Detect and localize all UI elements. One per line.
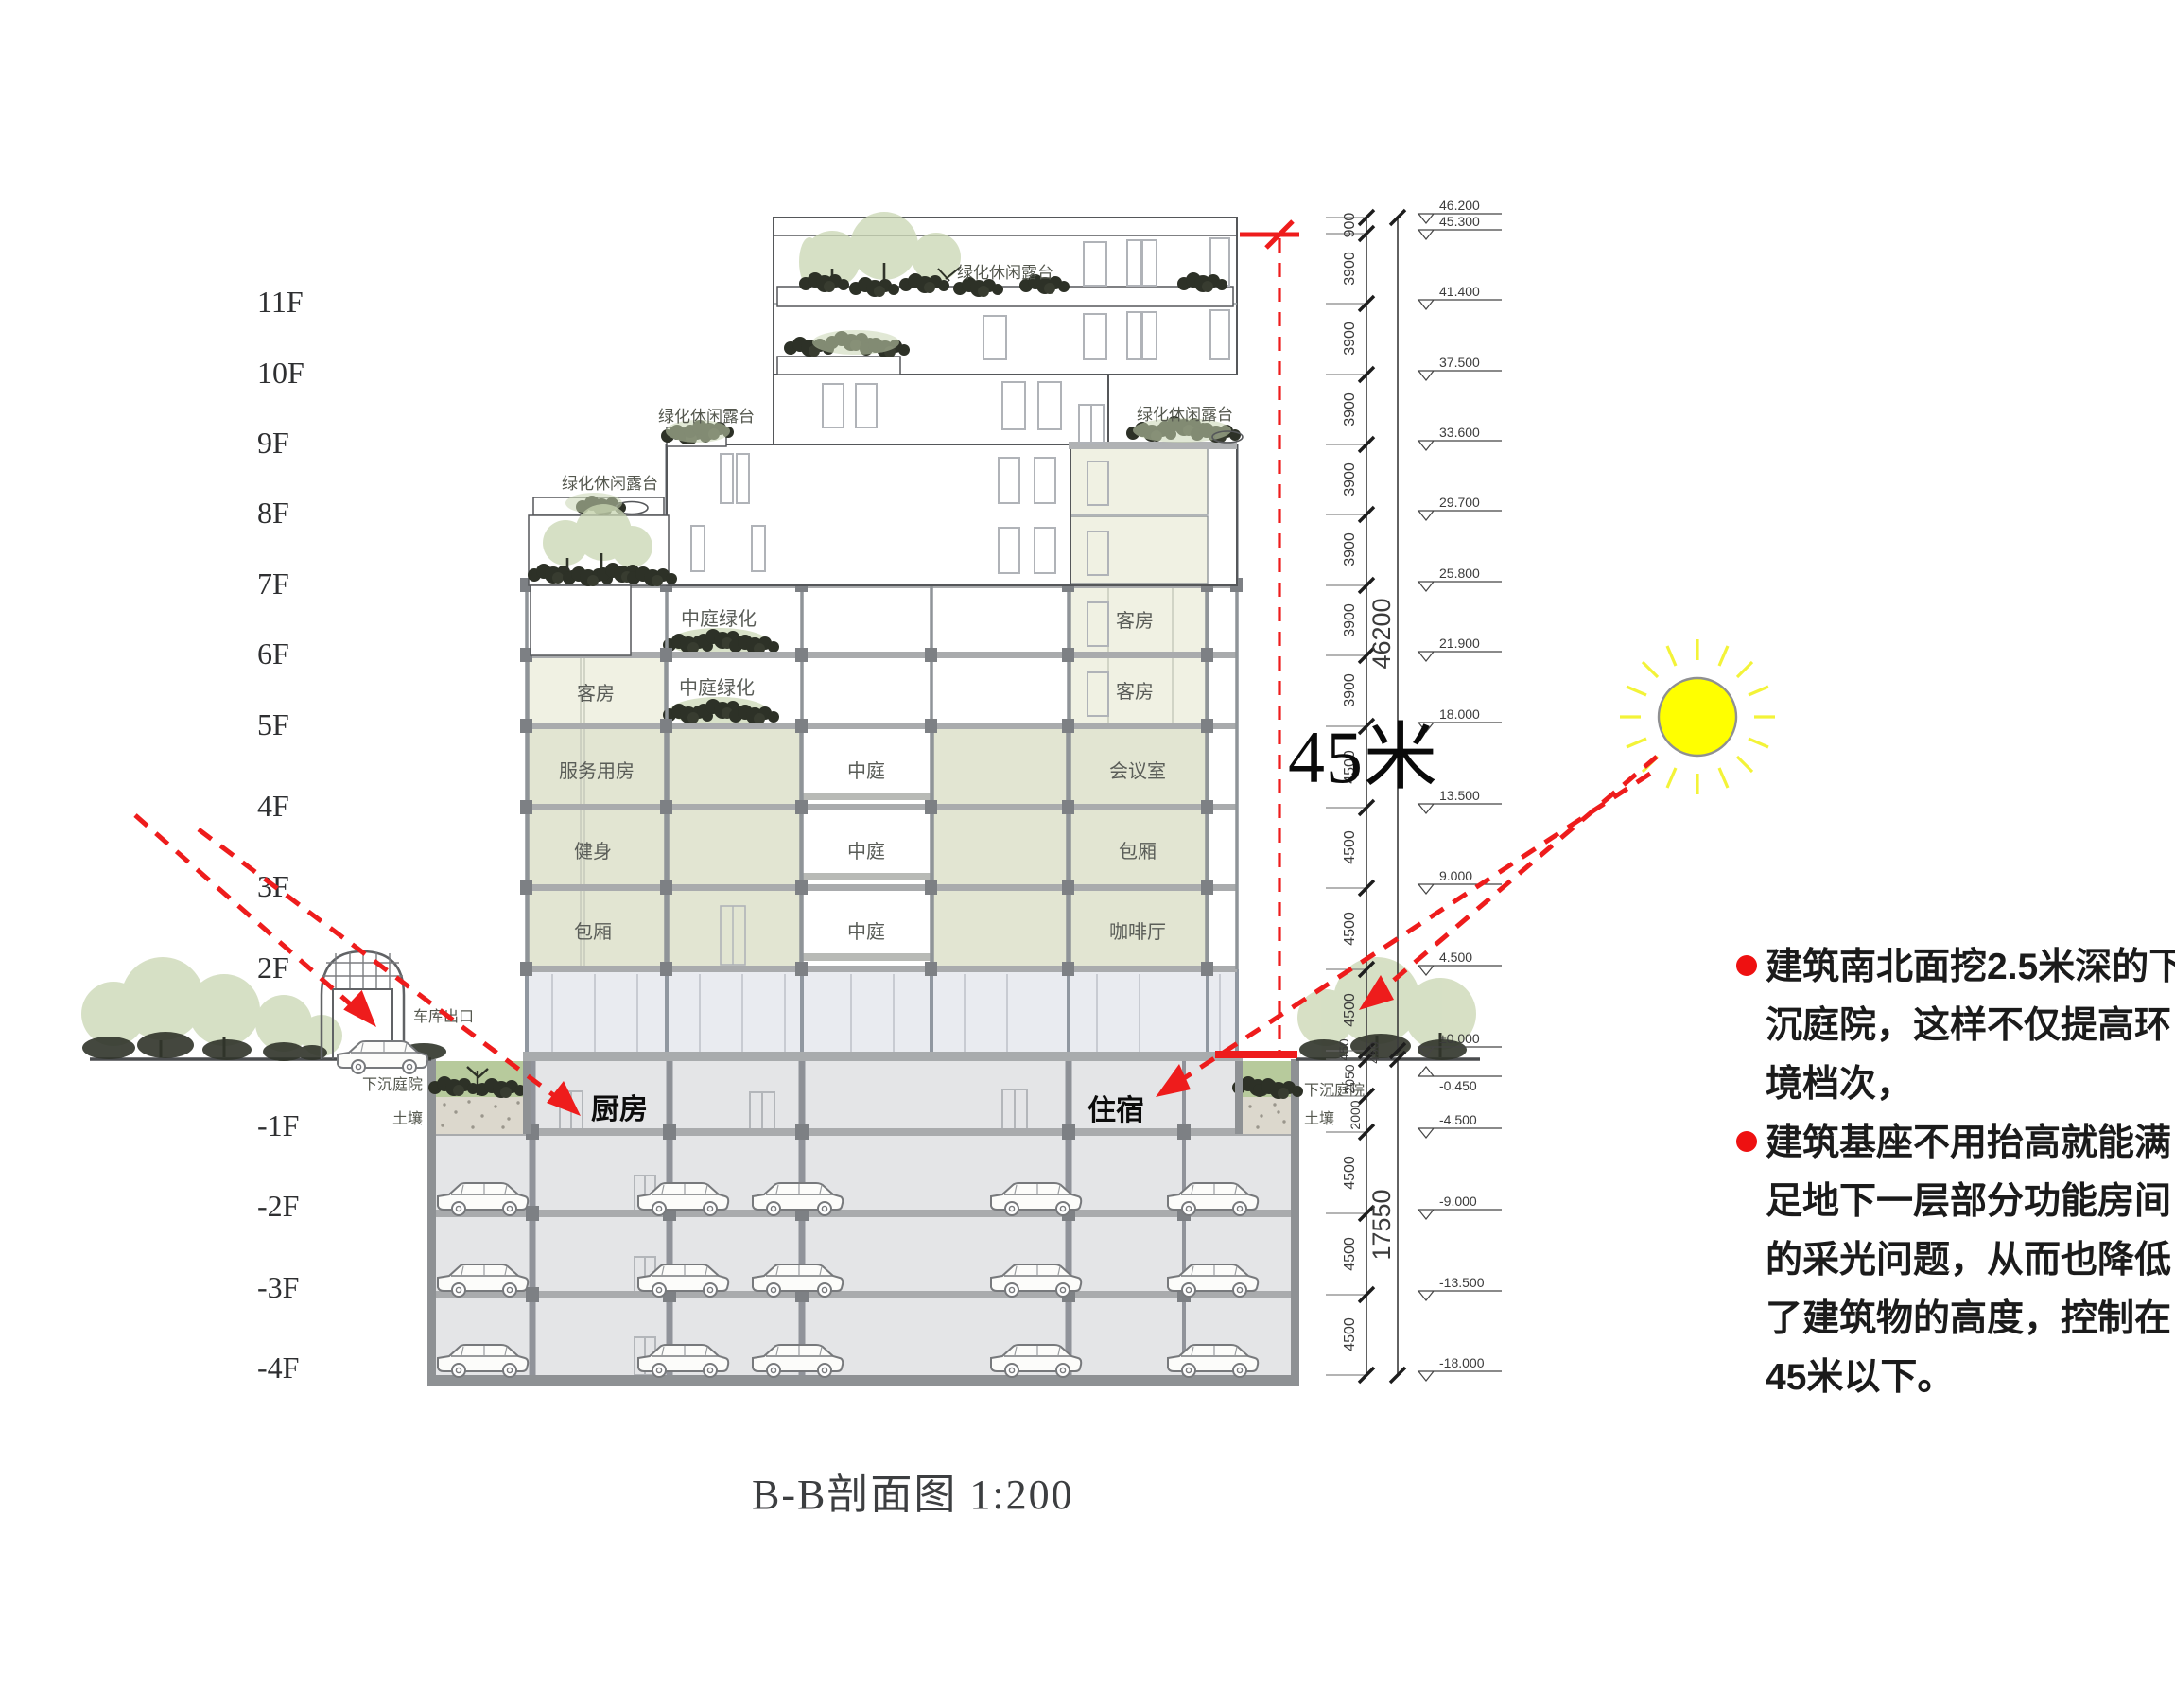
dim-b4500-3: 4500 [1342, 1317, 1358, 1351]
floor-label-m2f: -2F [257, 1189, 299, 1223]
sun-ray-right-2 [1175, 774, 1650, 1084]
terrace-label-top: 绿化休闲露台 [957, 264, 1053, 282]
soil-label-right: 土壤 [1304, 1109, 1334, 1127]
elev-4500: 4.500 [1439, 950, 1472, 965]
elev-18000: 18.000 [1439, 706, 1480, 722]
sunken-courtyard-label-left: 下沉庭院 [362, 1076, 423, 1093]
atrium-green-planters [663, 628, 779, 725]
dim-3900-3: 3900 [1342, 392, 1358, 427]
notes-block: 建筑南北面挖2.5米深的下 沉庭院，这样不仅提高环 境档次， 建筑基座不用抬高就… [1766, 938, 2172, 1407]
room-service: 服务用房 [559, 760, 635, 782]
dim-3900-4: 3900 [1342, 462, 1358, 497]
sun-icon [1620, 639, 1775, 794]
floor-label-11f: 11F [257, 285, 304, 319]
room-guest-6f-right: 客房 [1116, 610, 1154, 632]
note-line: 境档次， [1766, 1055, 2172, 1114]
elev-m9000: -9.000 [1439, 1194, 1477, 1209]
floor-label-2f: 2F [257, 950, 289, 985]
dim-3900-2: 3900 [1342, 322, 1358, 356]
room-atrium-green-5f: 中庭绿化 [679, 677, 755, 699]
dim-total-lower: 17550 [1367, 1189, 1396, 1260]
floor-label-10f: 10F [257, 356, 304, 390]
elev-9000: 9.000 [1439, 868, 1472, 883]
section-drawing: 厨房 住宿 车库出口 [0, 0, 2175, 1708]
note-line: 了建筑物的高度，控制在 [1766, 1290, 2172, 1349]
floor-label-7f: 7F [257, 566, 289, 601]
room-atrium-green-6f: 中庭绿化 [681, 608, 757, 630]
elev-m18000: -18.000 [1439, 1355, 1485, 1370]
dim-total-upper: 46200 [1367, 598, 1396, 669]
floor-label-5f: 5F [257, 707, 289, 741]
dim-900: 900 [1342, 213, 1358, 238]
dim-3900-1: 3900 [1342, 252, 1358, 286]
terrace-label-mid: 绿化休闲露台 [658, 408, 755, 426]
dim-450-a: 450 [1336, 1038, 1351, 1061]
kitchen-label: 厨房 [591, 1094, 648, 1125]
elev-37500: 37.500 [1439, 355, 1480, 370]
floor-label-m3f: -3F [257, 1270, 299, 1304]
elev-m4500: -4.500 [1439, 1112, 1477, 1127]
room-guest-5f-left: 客房 [577, 683, 615, 705]
foundation-slab [427, 1375, 1299, 1386]
note-line: 的采光问题，从而也降低 [1766, 1231, 2172, 1290]
room-meeting: 会议室 [1109, 760, 1166, 782]
room-atrium-2f: 中庭 [847, 921, 885, 943]
elev-45300: 45.300 [1439, 214, 1480, 229]
room-private-left: 包厢 [574, 921, 612, 943]
dim-2000: 2000 [1348, 1100, 1363, 1129]
elev-46200: 46.200 [1439, 198, 1480, 213]
note-line: 建筑基座不用抬高就能满 [1766, 1114, 2172, 1173]
dim-b4500-2: 4500 [1342, 1237, 1358, 1271]
elev-m450: -0.450 [1439, 1078, 1477, 1093]
dim-4500-2: 4500 [1342, 830, 1358, 864]
room-atrium-4f: 中庭 [847, 760, 885, 782]
basement: 厨房 住宿 [427, 1059, 1299, 1386]
room-gym: 健身 [574, 841, 612, 863]
room-guest-5f-right: 客房 [1116, 681, 1154, 703]
dim-450-b: 450 [1366, 1041, 1382, 1064]
dim-4500-3: 4500 [1342, 912, 1358, 946]
drawing-caption: B-B剖面图 1:200 [752, 1460, 1074, 1521]
room-cafe: 咖啡厅 [1109, 921, 1166, 943]
floor-label-8f: 8F [257, 496, 289, 530]
room-atrium-3f: 中庭 [847, 841, 885, 863]
note-line: 沉庭院，这样不仅提高环 [1766, 997, 2172, 1055]
floor-label-9f: 9F [257, 426, 289, 460]
dim-3900-5: 3900 [1342, 532, 1358, 566]
floor-labels: 11F 10F 9F 8F 7F 6F 5F 4F 3F 2F -1F -2F … [257, 285, 304, 1385]
terrace-label-left: 绿化休闲露台 [562, 475, 658, 493]
floor-label-m4f: -4F [257, 1351, 299, 1385]
dim-3900-6: 3900 [1342, 603, 1358, 637]
soil-label-left: 土壤 [392, 1109, 423, 1127]
floor-label-m1f: -1F [257, 1108, 299, 1142]
dim-b4500-1: 4500 [1342, 1156, 1358, 1190]
floor-label-6f: 6F [257, 636, 289, 671]
elev-29700: 29.700 [1439, 495, 1480, 510]
bullet-icon [1736, 1131, 1757, 1152]
room-private-right: 包厢 [1119, 841, 1157, 863]
lodging-label: 住宿 [1087, 1095, 1144, 1126]
elev-21900: 21.900 [1439, 636, 1480, 651]
dim-2050: 2050 [1342, 1064, 1357, 1093]
elev-41400: 41.400 [1439, 284, 1480, 299]
ground-floor [523, 969, 1243, 1061]
dim-4500-4: 4500 [1342, 993, 1358, 1027]
note-line: 45米以下。 [1766, 1349, 2172, 1407]
note-line: 足地下一层部分功能房间 [1766, 1173, 2172, 1231]
note-line: 建筑南北面挖2.5米深的下 [1766, 938, 2172, 997]
elev-m13500: -13.500 [1439, 1275, 1485, 1290]
elev-33600: 33.600 [1439, 425, 1480, 440]
elev-13500: 13.500 [1439, 788, 1480, 803]
elev-25800: 25.800 [1439, 566, 1480, 581]
height-note: 45米 [1288, 698, 1438, 804]
floor-label-4f: 4F [257, 789, 289, 823]
elev-0: ±0.000 [1439, 1031, 1480, 1046]
bullet-icon [1736, 955, 1757, 976]
terrace-label-right: 绿化休闲露台 [1137, 406, 1233, 424]
